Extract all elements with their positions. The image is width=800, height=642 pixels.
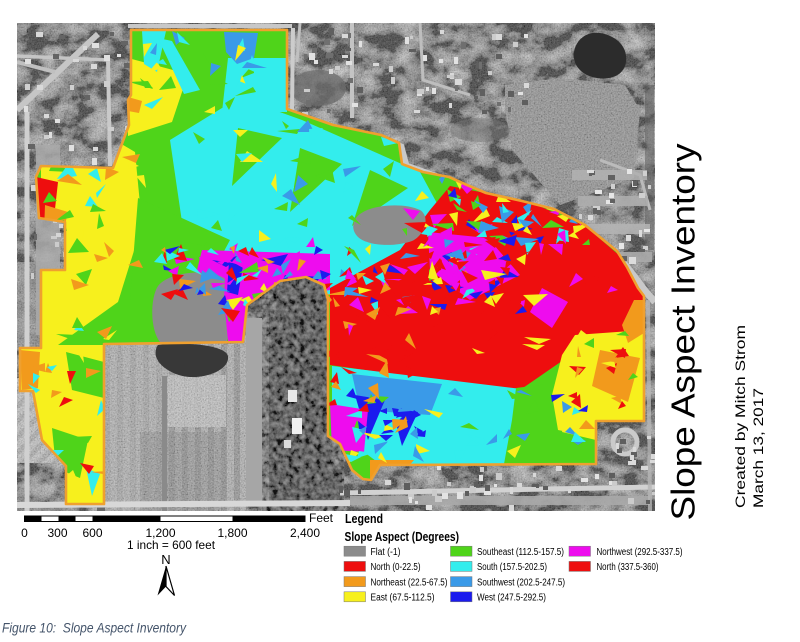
svg-text:Figure 10: Slope Aspect Inven: Figure 10: Slope Aspect Inventory	[2, 621, 187, 636]
svg-text:March 13, 2017: March 13, 2017	[750, 388, 766, 508]
svg-text:North (0-22.5): North (0-22.5)	[371, 562, 421, 573]
svg-text:1 inch = 600 feet: 1 inch = 600 feet	[127, 538, 216, 552]
svg-text:Legend: Legend	[345, 512, 383, 526]
svg-text:South (157.5-202.5): South (157.5-202.5)	[477, 562, 547, 573]
svg-text:Flat (-1): Flat (-1)	[371, 547, 401, 558]
svg-text:2,400: 2,400	[290, 526, 320, 540]
svg-text:1,800: 1,800	[217, 526, 247, 540]
svg-text:Southeast (112.5-157.5): Southeast (112.5-157.5)	[477, 547, 564, 558]
svg-text:Feet: Feet	[309, 511, 334, 525]
svg-text:West (247.5-292.5): West (247.5-292.5)	[477, 593, 546, 604]
svg-text:Northeast (22.5-67.5): Northeast (22.5-67.5)	[371, 577, 448, 588]
svg-text:Southwest (202.5-247.5): Southwest (202.5-247.5)	[477, 577, 565, 588]
svg-text:Northwest (292.5-337.5): Northwest (292.5-337.5)	[597, 547, 683, 558]
svg-text:East (67.5-112.5): East (67.5-112.5)	[371, 593, 435, 604]
svg-text:300: 300	[47, 526, 67, 540]
svg-text:600: 600	[82, 526, 102, 540]
svg-text:N: N	[161, 552, 170, 567]
svg-text:North (337.5-360): North (337.5-360)	[597, 562, 659, 573]
svg-text:Slope Aspect Inventory: Slope Aspect Inventory	[665, 143, 702, 521]
svg-text:0: 0	[21, 526, 28, 540]
svg-text:Slope Aspect (Degrees): Slope Aspect (Degrees)	[345, 530, 460, 544]
svg-text:Created by Mitch Strom: Created by Mitch Strom	[732, 325, 748, 508]
